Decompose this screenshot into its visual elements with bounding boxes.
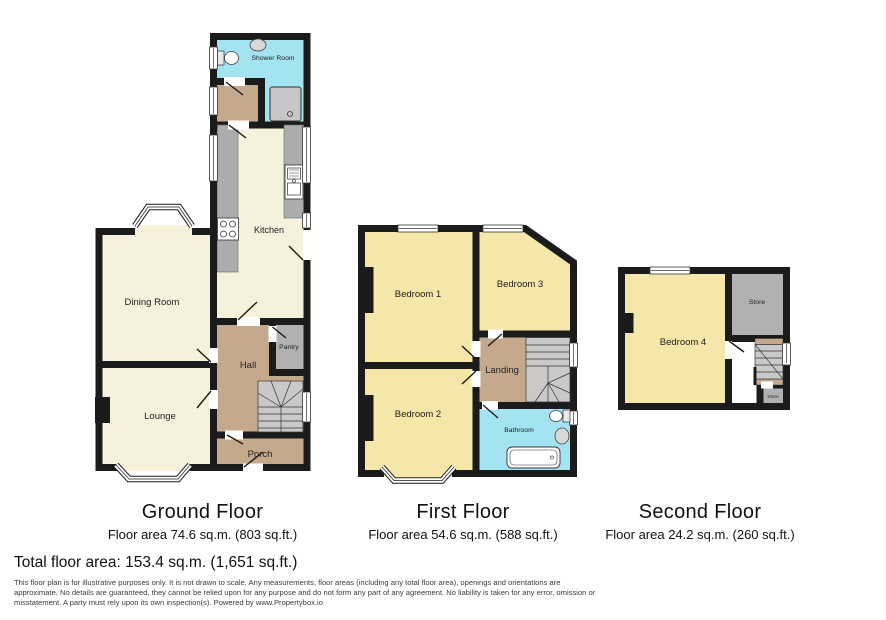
floor-name: First Floor [348, 501, 578, 524]
room-label-lounge: Lounge [144, 411, 176, 422]
room-label-store: Store [749, 299, 765, 306]
floor-area: Floor area 54.6 sq.m. (588 sq.ft.) [348, 527, 578, 542]
room-label-kitchen: Kitchen [254, 225, 284, 235]
stove-fixture [218, 218, 239, 240]
caption-first-floor: First Floor Floor area 54.6 sq.m. (588 s… [348, 501, 578, 542]
disclaimer: This floor plan is for illustrative purp… [14, 578, 595, 608]
room-label-pantry: Pantry [279, 344, 299, 351]
bathtub-fixture [507, 447, 560, 468]
disclaimer-line: This floor plan is for illustrative purp… [14, 578, 595, 588]
kitchen-sink-fixture [285, 165, 303, 199]
room-rear-lobby [214, 82, 262, 126]
floor-name: Ground Floor [85, 501, 320, 524]
total-floor-area: Total floor area: 153.4 sq.m. (1,651 sq.… [14, 554, 297, 572]
bay-window-bedroom-2 [382, 467, 454, 481]
room-label-bathroom: Bathroom [504, 427, 534, 434]
floorplan-page: Shower Room Kitchen Dining Room Hall Pan… [0, 0, 886, 620]
shower-tray-fixture [270, 87, 301, 121]
floorplan-first-floor: Bedroom 1 Bedroom 3 Bedroom 2 Landing Ba… [355, 215, 585, 490]
disclaimer-line: approximate. No details are guaranteed, … [14, 588, 595, 598]
room-label-bedroom-1: Bedroom 1 [395, 289, 441, 300]
room-label-bedroom-3: Bedroom 3 [497, 279, 543, 290]
stairs-second-floor [755, 339, 783, 386]
bay-window-lounge [116, 461, 190, 479]
disclaimer-line: misstatement. A party must rely upon its… [14, 598, 595, 608]
basin-fixture [555, 428, 569, 444]
room-label-store-small: Store [767, 394, 779, 400]
room-label-bedroom-4: Bedroom 4 [660, 337, 706, 348]
bay-window-dining [135, 207, 192, 235]
floor-area: Floor area 24.2 sq.m. (260 sq.ft.) [585, 527, 815, 542]
floor-name: Second Floor [585, 501, 815, 524]
room-label-bedroom-2: Bedroom 2 [395, 409, 441, 420]
toilet-fixture [218, 51, 239, 65]
room-label-landing: Landing [485, 365, 519, 376]
room-label-shower: Shower Room [251, 55, 294, 62]
floorplan-second-floor: Bedroom 4 Store Store [615, 255, 795, 420]
room-label-dining: Dining Room [125, 297, 180, 308]
room-label-porch: Porch [248, 449, 273, 460]
chimney-breast [362, 267, 374, 313]
chimney-breast [622, 313, 634, 333]
window [210, 47, 218, 181]
kitchen-counter-left [218, 125, 239, 272]
basin-fixture [250, 39, 266, 51]
chimney-breast [362, 395, 374, 441]
stairs-first-floor [526, 338, 570, 403]
stairs-ground-floor [258, 381, 303, 432]
toilet-fixture [550, 410, 571, 422]
chimney-breast [95, 397, 110, 423]
floorplan-ground-floor: Shower Room Kitchen Dining Room Hall Pan… [85, 15, 320, 485]
caption-ground-floor: Ground Floor Floor area 74.6 sq.m. (803 … [85, 501, 320, 542]
room-label-hall: Hall [240, 360, 256, 371]
floor-area: Floor area 74.6 sq.m. (803 sq.ft.) [85, 527, 320, 542]
caption-second-floor: Second Floor Floor area 24.2 sq.m. (260 … [585, 501, 815, 542]
